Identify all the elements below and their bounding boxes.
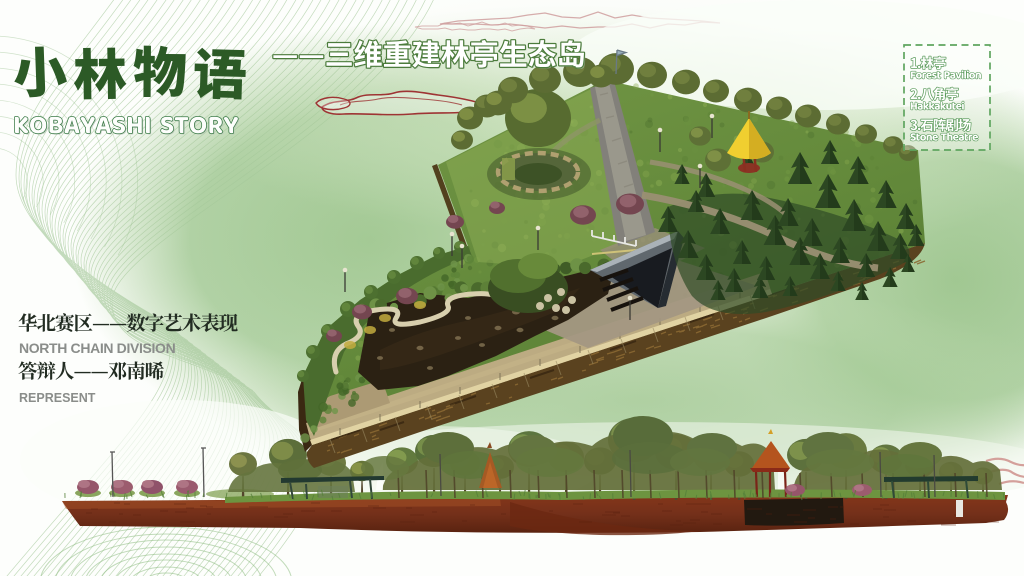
svg-text:REPRESENT: REPRESENT xyxy=(19,391,96,405)
svg-text:NORTH CHAIN DIVISION: NORTH CHAIN DIVISION xyxy=(19,340,176,356)
